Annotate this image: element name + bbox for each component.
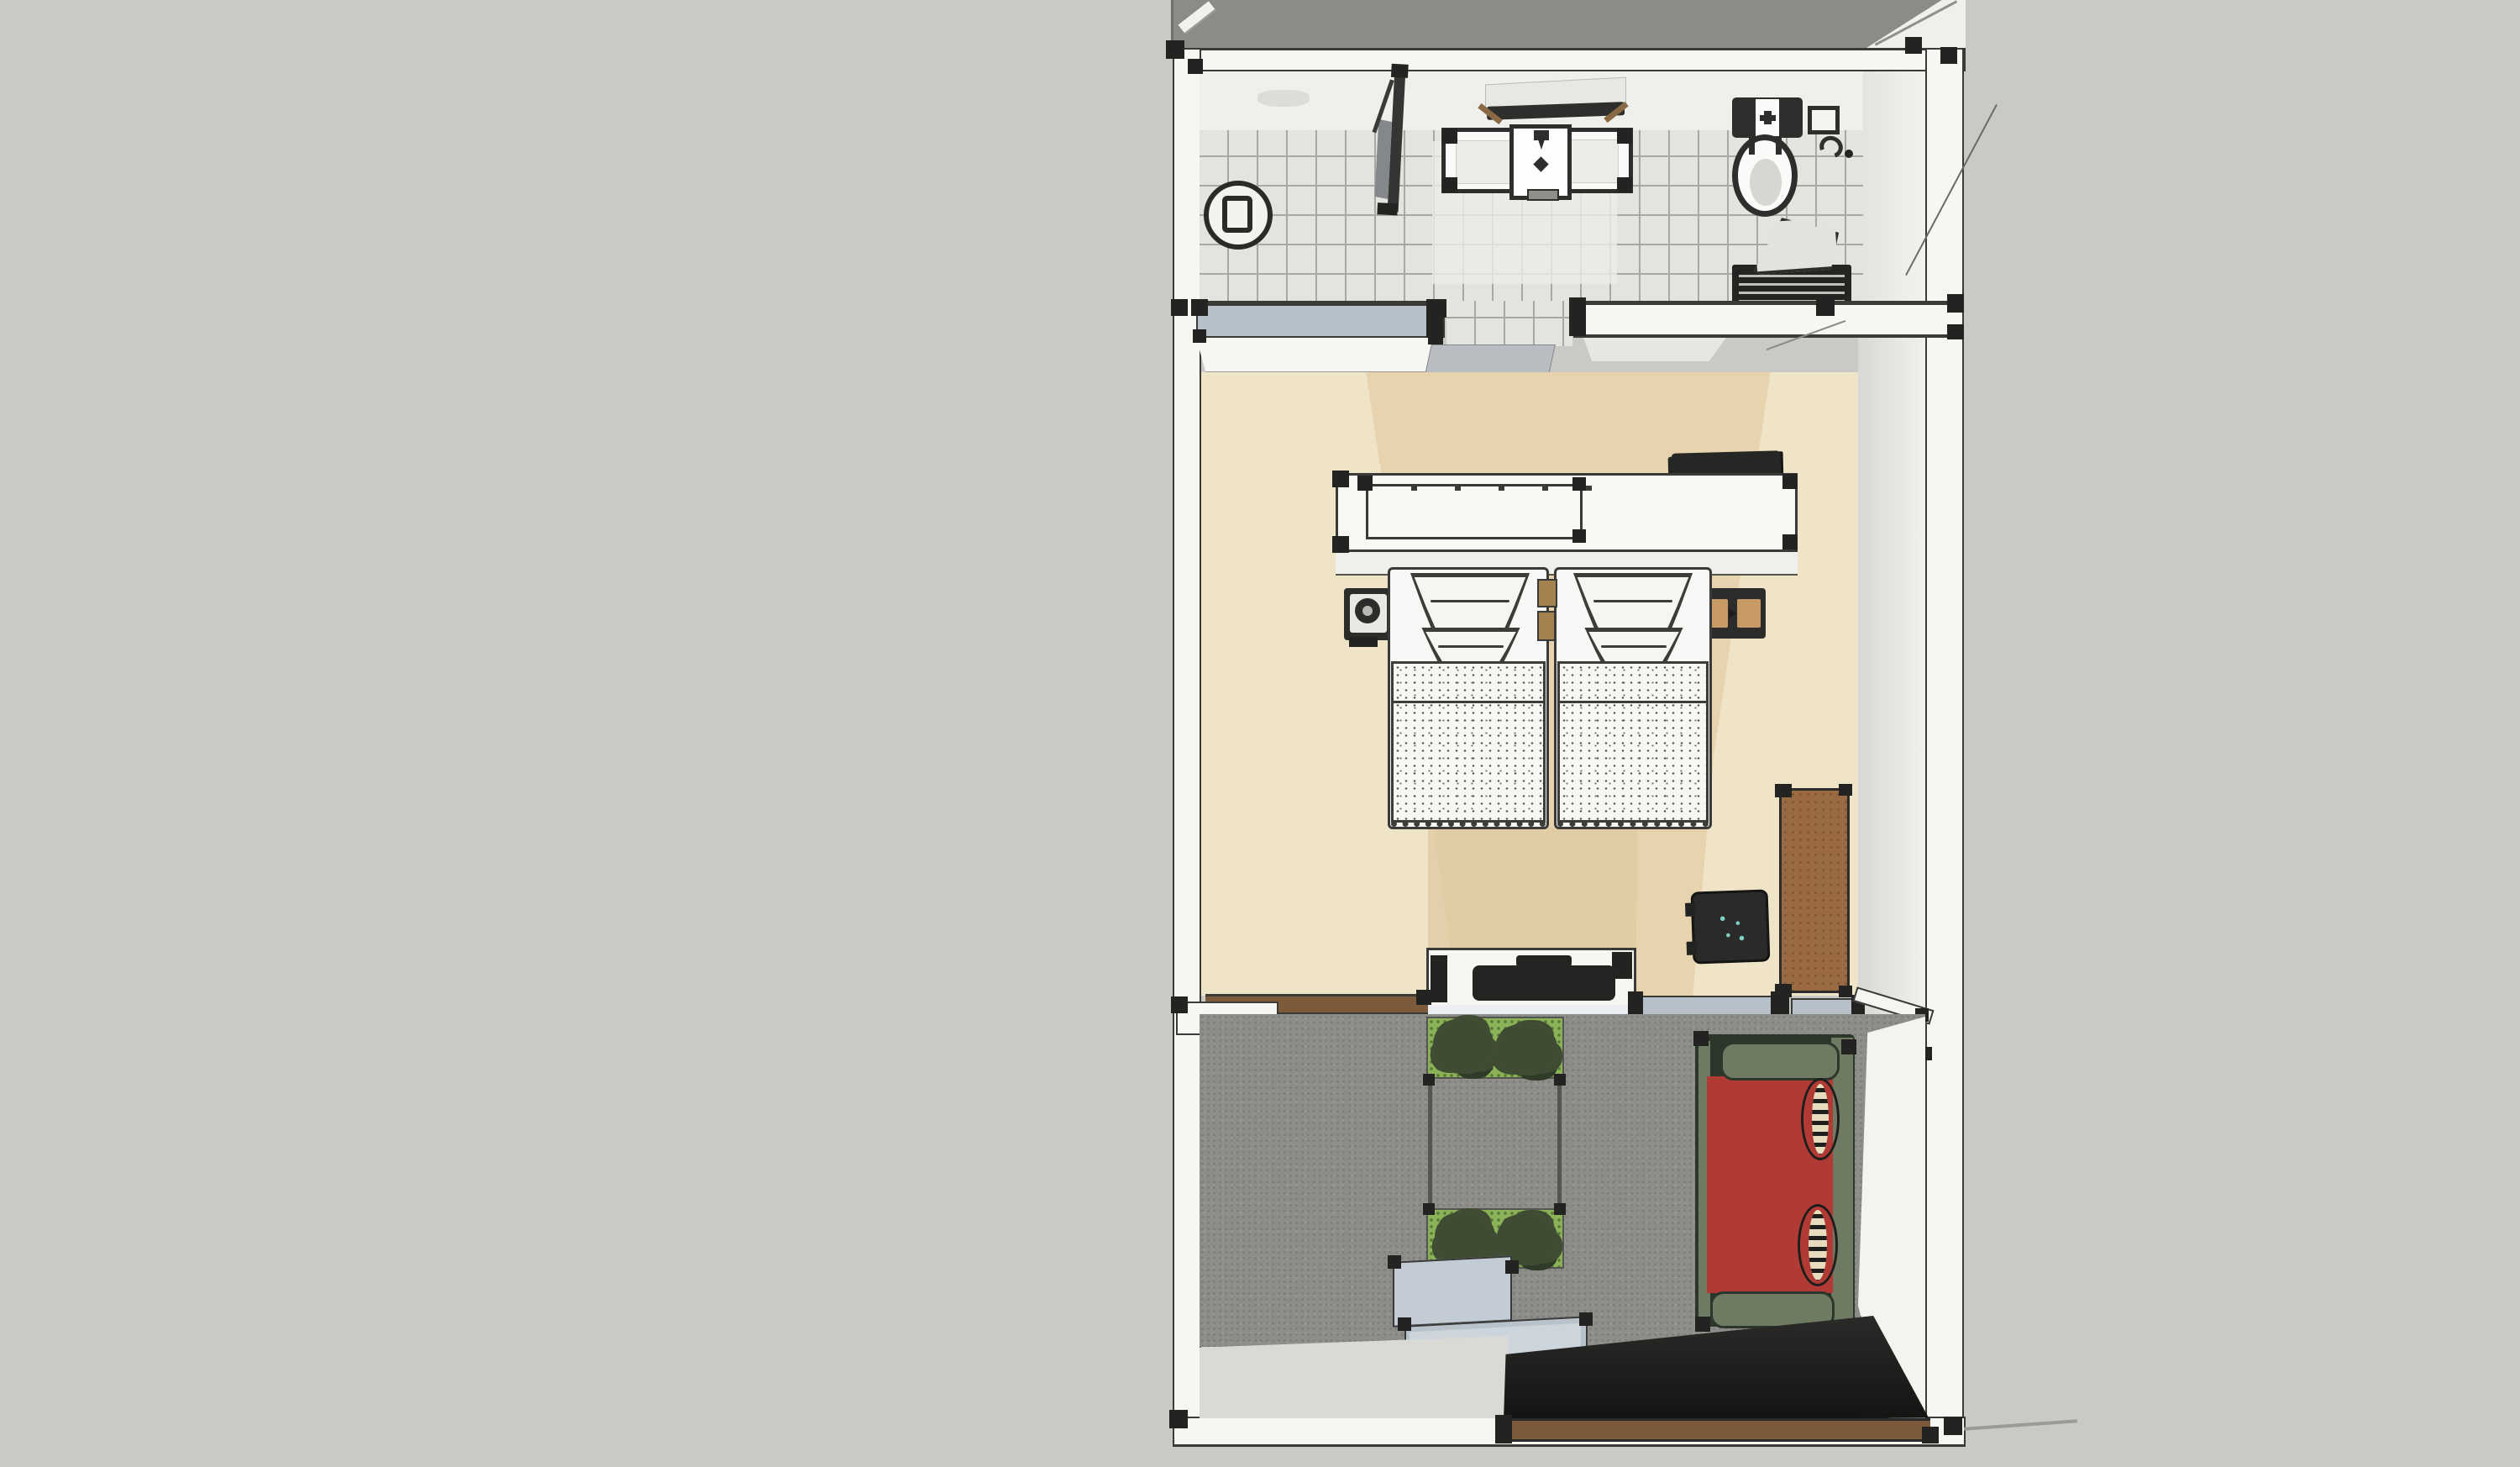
duvet-left: [1391, 661, 1546, 823]
shell-post-tl-outer: [1166, 40, 1184, 59]
nightstand-right-notch: [1729, 608, 1736, 618]
cabinet-post-tr: [1839, 784, 1852, 796]
duvet-right: [1557, 661, 1709, 823]
midwall-right-segment: [1573, 301, 1964, 338]
bed-gap-leg-upper: [1537, 579, 1557, 607]
table-lamp-shade: [1362, 606, 1373, 616]
duvet-left-foldline: [1394, 701, 1543, 703]
console-post-l3: [1332, 536, 1349, 553]
door-threshold: [1425, 344, 1556, 375]
towel-hook-dot: [1845, 150, 1853, 158]
desk-chair-pattern: [1715, 911, 1748, 945]
planter-post-bl: [1423, 1203, 1435, 1215]
counter-post-br: [1617, 177, 1632, 192]
trellis-rail-right: [1557, 1077, 1562, 1212]
pillow-right-2-seam: [1601, 645, 1667, 648]
sofa-post-bl: [1695, 1317, 1710, 1332]
wall-post-left-window: [1171, 996, 1188, 1013]
toilet-flush-button-h: [1760, 115, 1776, 121]
bed-gap-leg-lower: [1537, 611, 1556, 641]
step-bench-post-1: [1388, 1255, 1401, 1269]
desk-chair: [1691, 889, 1771, 964]
wall-top: [1173, 48, 1966, 71]
midwall-right-face: [1583, 338, 1726, 361]
console-post-l1: [1332, 471, 1349, 487]
trellis-rail-left: [1428, 1077, 1432, 1212]
wall-right: [1925, 48, 1964, 1447]
sofa-arm-cushion-top: [1720, 1042, 1840, 1081]
bathroom-right-wall-face: [1863, 71, 1925, 332]
counter-panel-right: [1565, 139, 1619, 183]
planter-box-upper: [1426, 1017, 1564, 1079]
nightstand-left: [1344, 588, 1393, 640]
exterior-upper-floor: [1173, 0, 1966, 48]
toilet-bowl: [1732, 134, 1798, 217]
shell-post-tr-inner: [1940, 47, 1957, 64]
pillow-left-1-seam: [1431, 600, 1510, 602]
desk-chair-arm-bottom: [1687, 941, 1698, 954]
bedroom-right-wall-face: [1858, 338, 1925, 1035]
floor-drain: [1204, 181, 1273, 250]
toilet-hinge-right: [1776, 138, 1782, 155]
shell-post-br: [1944, 1417, 1962, 1435]
step-bench-post-2: [1505, 1260, 1519, 1274]
cabinet-post-br: [1839, 986, 1852, 997]
wall-left: [1173, 48, 1201, 1447]
closet-post-tl: [1191, 299, 1208, 316]
bench-bag: [1473, 965, 1615, 1001]
wall-post-left-mid: [1171, 299, 1188, 316]
midwall-post-right: [1947, 294, 1964, 313]
bush-1: [1433, 1018, 1494, 1074]
console-post-r1: [1782, 474, 1798, 489]
table-lamp: [1355, 598, 1380, 623]
threshold-post-left: [1495, 1415, 1512, 1443]
luggage-bench: [1426, 948, 1636, 1010]
entry-threshold-brown: [1504, 1418, 1930, 1442]
closet-front-face: [1196, 338, 1441, 373]
door-gap-floor: [1446, 301, 1572, 346]
bench-post-left: [1431, 955, 1447, 1002]
duvet-right-foldline: [1560, 701, 1706, 703]
floor-plan-viewport[interactable]: [0, 0, 2520, 1467]
sink-front-rail: [1527, 189, 1559, 201]
shell-post-tl-inner: [1188, 59, 1203, 74]
bush-2: [1495, 1023, 1557, 1075]
extension-line-bottom-right: [1964, 1419, 2077, 1430]
cabinet-post-top: [1775, 784, 1792, 797]
toilet-hinge-left: [1749, 138, 1755, 155]
headboard-console: [1336, 452, 1798, 574]
counter-post-tl: [1442, 129, 1457, 144]
twin-beds: [1388, 567, 1715, 832]
window-post-bench-left: [1416, 990, 1431, 1005]
floor-drain-grate: [1222, 196, 1252, 233]
tall-cabinet: [1779, 788, 1850, 993]
toilet-tank: [1732, 97, 1803, 138]
hanging-towel-smudge: [1257, 90, 1310, 107]
outdoor-landing: [1200, 1336, 1509, 1418]
step-bench-post-4: [1579, 1312, 1593, 1326]
console-post-m2: [1572, 529, 1586, 543]
planter-post-tl: [1423, 1074, 1435, 1086]
counter-panel-left: [1456, 140, 1513, 184]
console-post-r2: [1782, 534, 1798, 549]
console-post-l2: [1357, 476, 1373, 491]
step-bench-post-3: [1398, 1317, 1411, 1331]
step-bench-upper: [1393, 1255, 1512, 1327]
pillow-right-1-seam: [1593, 600, 1673, 602]
desk-chair-arm-top: [1685, 902, 1696, 916]
sink-drain: [1533, 156, 1548, 171]
duvet-right-fringe: [1557, 821, 1709, 827]
shower-screen-post-bottom: [1377, 202, 1398, 215]
sofa-post-tl: [1693, 1031, 1709, 1046]
sofa-back-rail: [1831, 1038, 1853, 1323]
console-switch-ticks: [1411, 486, 1596, 491]
sofa-post-tr: [1841, 1039, 1856, 1054]
nightstand-right-panel-2: [1737, 599, 1761, 628]
sink-basin: [1509, 124, 1572, 200]
bolster-pillow-top: [1801, 1078, 1840, 1160]
planter-post-br: [1554, 1203, 1566, 1215]
console-tray: [1366, 484, 1583, 539]
duvet-left-fringe: [1391, 821, 1546, 827]
bench-bag-handle: [1516, 955, 1572, 967]
midwall-post-right2: [1947, 324, 1964, 339]
counter-post-bl: [1442, 177, 1457, 192]
midwall-post-left: [1569, 297, 1586, 336]
nightstand-left-foot: [1349, 637, 1378, 647]
doorgap-post-left: [1426, 299, 1443, 338]
bolster-pillow-bottom: [1798, 1204, 1838, 1286]
toilet: [1730, 94, 1806, 220]
sink-faucet-spout: [1538, 139, 1545, 150]
midwall-post-mid: [1816, 294, 1835, 316]
red-daybed-sofa: [1695, 1029, 1856, 1329]
shell-post-tr-outer: [1905, 37, 1922, 54]
closet-top-shelf: [1196, 304, 1445, 338]
shell-post-bl: [1169, 1410, 1188, 1428]
counter-post-tr: [1617, 129, 1632, 144]
toilet-paper-holder: [1808, 106, 1840, 134]
console-post-m1: [1572, 477, 1586, 491]
threshold-post-right: [1922, 1427, 1939, 1443]
planter-post-tr: [1554, 1074, 1566, 1086]
closet-post-bl: [1193, 329, 1206, 343]
sink-faucet: [1534, 130, 1549, 140]
pillow-left-2-seam: [1438, 645, 1504, 648]
toilet-bowl-inner: [1750, 159, 1782, 206]
shower-screen-post-top: [1391, 64, 1409, 78]
